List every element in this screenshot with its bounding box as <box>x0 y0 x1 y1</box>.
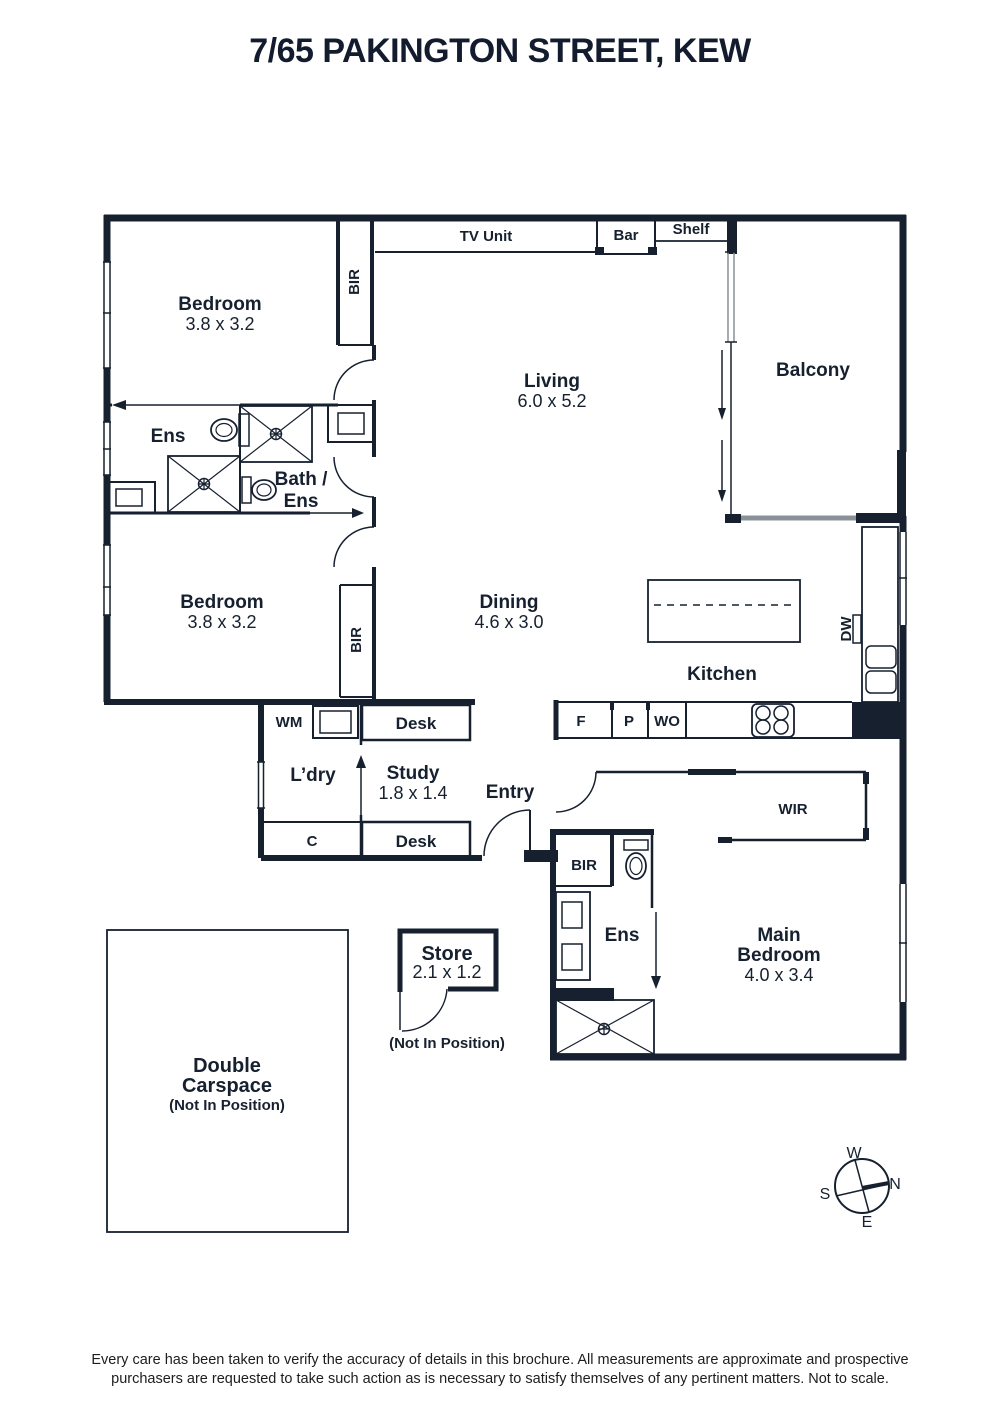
bedroom2-size: 3.8 x 3.2 <box>187 612 256 632</box>
balcony-sliding-wall <box>718 252 906 523</box>
main-bedroom-name-line1: Main <box>757 925 800 946</box>
wall-oven-label: WO <box>654 713 680 730</box>
main-bedroom-name-line2: Bedroom <box>737 945 820 966</box>
compass-north-label: N <box>889 1176 901 1193</box>
floor-plan-page: 7/65 PAKINGTON STREET, KEW <box>0 0 1000 1415</box>
bath-ens-name-line1: Bath / <box>275 469 329 490</box>
room-labels: TV Unit Bar Shelf BIR Bedroom 3.8 x 3.2 … <box>151 221 855 1114</box>
wir-label: WIR <box>778 801 807 818</box>
pantry-label: P <box>624 713 634 730</box>
living-name: Living <box>524 371 580 392</box>
bedroom2-name: Bedroom <box>180 592 263 613</box>
study-name: Study <box>387 763 440 784</box>
ens2-name: Ens <box>605 925 640 946</box>
washing-machine-label: WM <box>276 714 303 731</box>
compass-west-label: W <box>846 1145 862 1162</box>
compass-south-label: S <box>820 1186 831 1203</box>
compass-east-label: E <box>862 1214 873 1231</box>
toilet-icon <box>211 414 249 446</box>
disclaimer-line2: purchasers are requested to take such ac… <box>111 1371 889 1387</box>
kitchen-island <box>648 580 800 642</box>
cooktop-icon <box>752 704 794 737</box>
bedroom1-size: 3.8 x 3.2 <box>185 314 254 334</box>
compass-rose: W N S E <box>820 1145 901 1231</box>
kitchen-name: Kitchen <box>687 664 757 685</box>
floor-plan-svg: 7/65 PAKINGTON STREET, KEW <box>0 0 1000 1415</box>
carspace-name-line2: Carspace <box>182 1075 272 1097</box>
study-size: 1.8 x 1.4 <box>378 783 447 803</box>
toilet-icon <box>242 477 276 503</box>
dishwasher-label: DW <box>838 616 855 642</box>
bir-bedroom1-label: BIR <box>346 269 363 295</box>
ens1-name: Ens <box>151 426 186 447</box>
dining-name: Dining <box>479 592 538 613</box>
shower-icon <box>240 406 312 462</box>
bar-label: Bar <box>613 227 638 244</box>
desk-top-label: Desk <box>396 714 437 733</box>
entry-name: Entry <box>486 782 535 803</box>
laundry-name: L’dry <box>290 765 336 786</box>
doors <box>112 360 661 989</box>
shower-icon <box>556 1000 654 1054</box>
main-ens-fixtures <box>556 840 648 980</box>
bedroom1-name: Bedroom <box>178 294 261 315</box>
washing-machine-icon <box>313 706 358 738</box>
fridge-label: F <box>576 713 585 730</box>
main-bedroom-size: 4.0 x 3.4 <box>744 965 813 985</box>
cupboard-label: C <box>307 833 318 850</box>
carspace-note: (Not In Position) <box>169 1097 285 1114</box>
carspace-name-line1: Double <box>193 1055 261 1077</box>
store-note: (Not In Position) <box>389 1035 505 1052</box>
store-size: 2.1 x 1.2 <box>412 962 481 982</box>
balcony-name: Balcony <box>776 360 850 381</box>
disclaimer-line1: Every care has been taken to verify the … <box>91 1352 908 1368</box>
shower-icon <box>168 456 240 512</box>
vanity-icon <box>107 482 155 513</box>
shelf-label: Shelf <box>673 221 711 238</box>
tv-unit-label: TV Unit <box>460 228 513 245</box>
desk-bottom-label: Desk <box>396 832 437 851</box>
bir-main-label: BIR <box>571 857 597 874</box>
page-title: 7/65 PAKINGTON STREET, KEW <box>249 32 752 70</box>
disclaimer: Every care has been taken to verify the … <box>91 1352 908 1387</box>
dining-size: 4.6 x 3.0 <box>474 612 543 632</box>
bir-bedroom2-label: BIR <box>348 627 365 653</box>
living-size: 6.0 x 5.2 <box>517 391 586 411</box>
vanity-icon <box>328 405 374 442</box>
bath-ens-name-line2: Ens <box>284 491 319 512</box>
